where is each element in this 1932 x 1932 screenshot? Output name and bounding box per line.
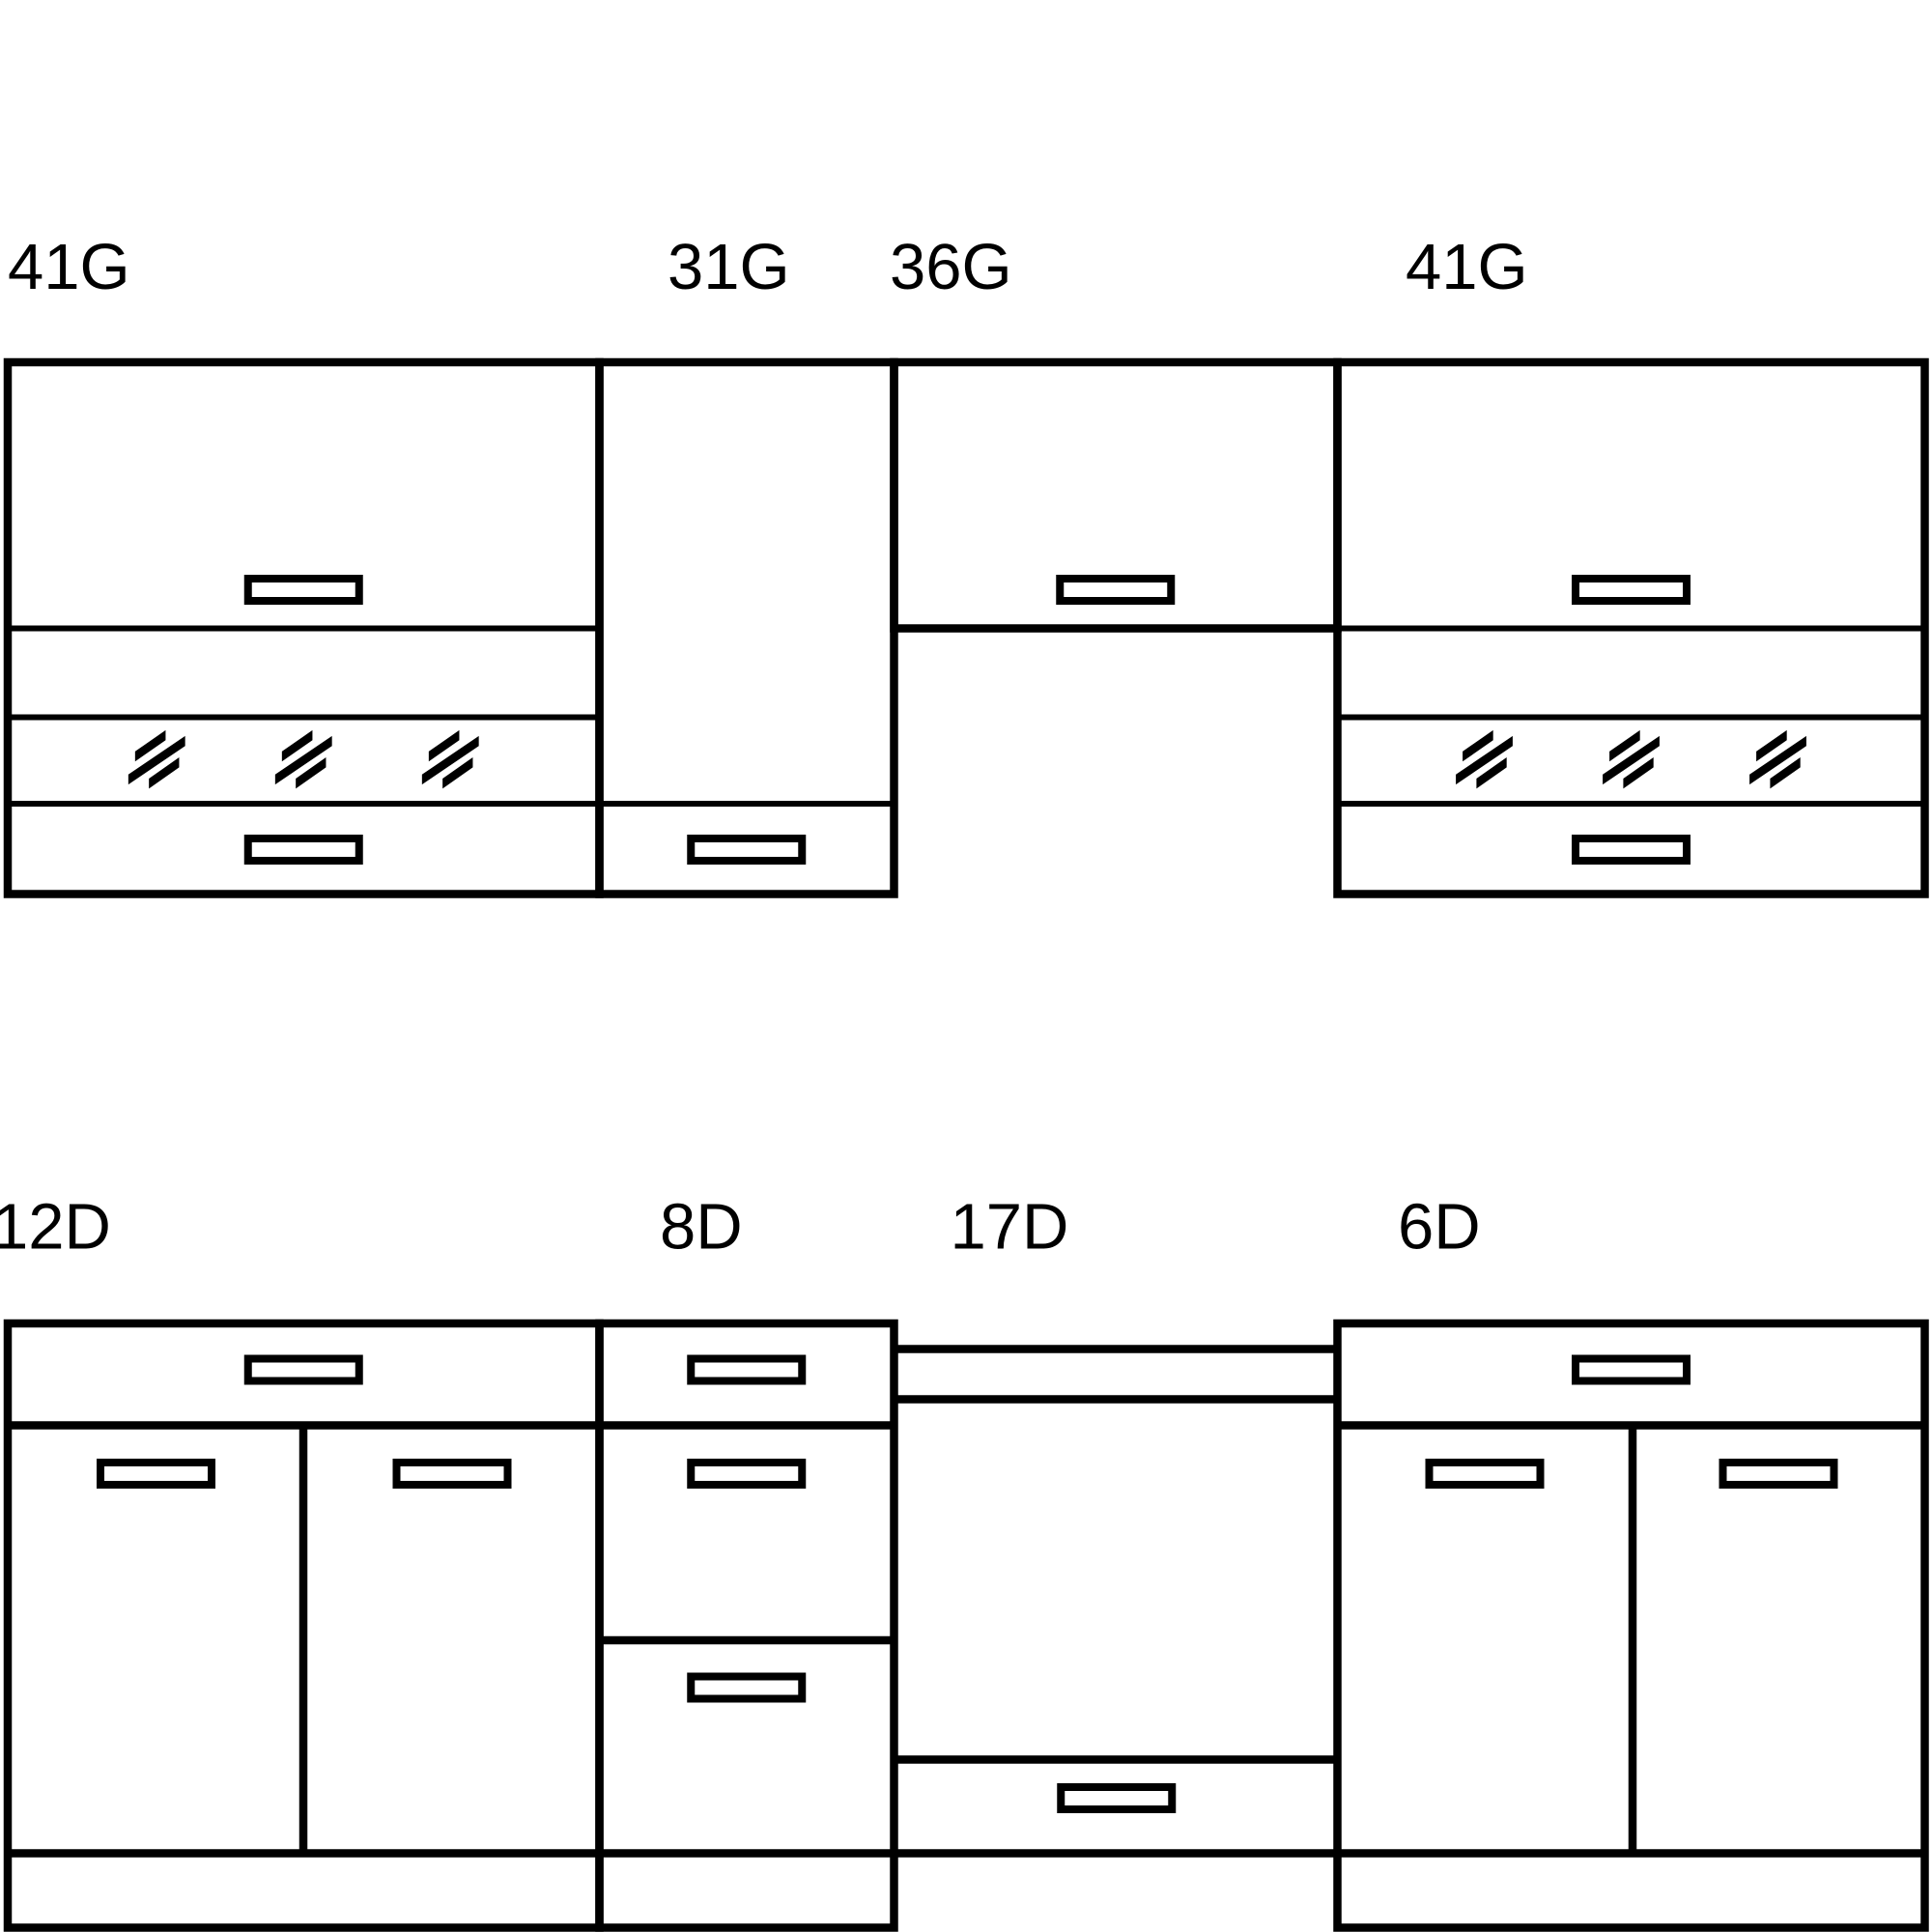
svg-text:41G: 41G xyxy=(8,231,130,303)
svg-text:6D: 6D xyxy=(1398,1191,1481,1264)
svg-text:31G: 31G xyxy=(668,231,790,303)
svg-text:8D: 8D xyxy=(660,1191,743,1264)
svg-text:17D: 17D xyxy=(951,1191,1069,1264)
svg-text:36G: 36G xyxy=(890,231,1012,303)
svg-text:12D: 12D xyxy=(0,1191,111,1264)
svg-text:41G: 41G xyxy=(1406,231,1528,303)
